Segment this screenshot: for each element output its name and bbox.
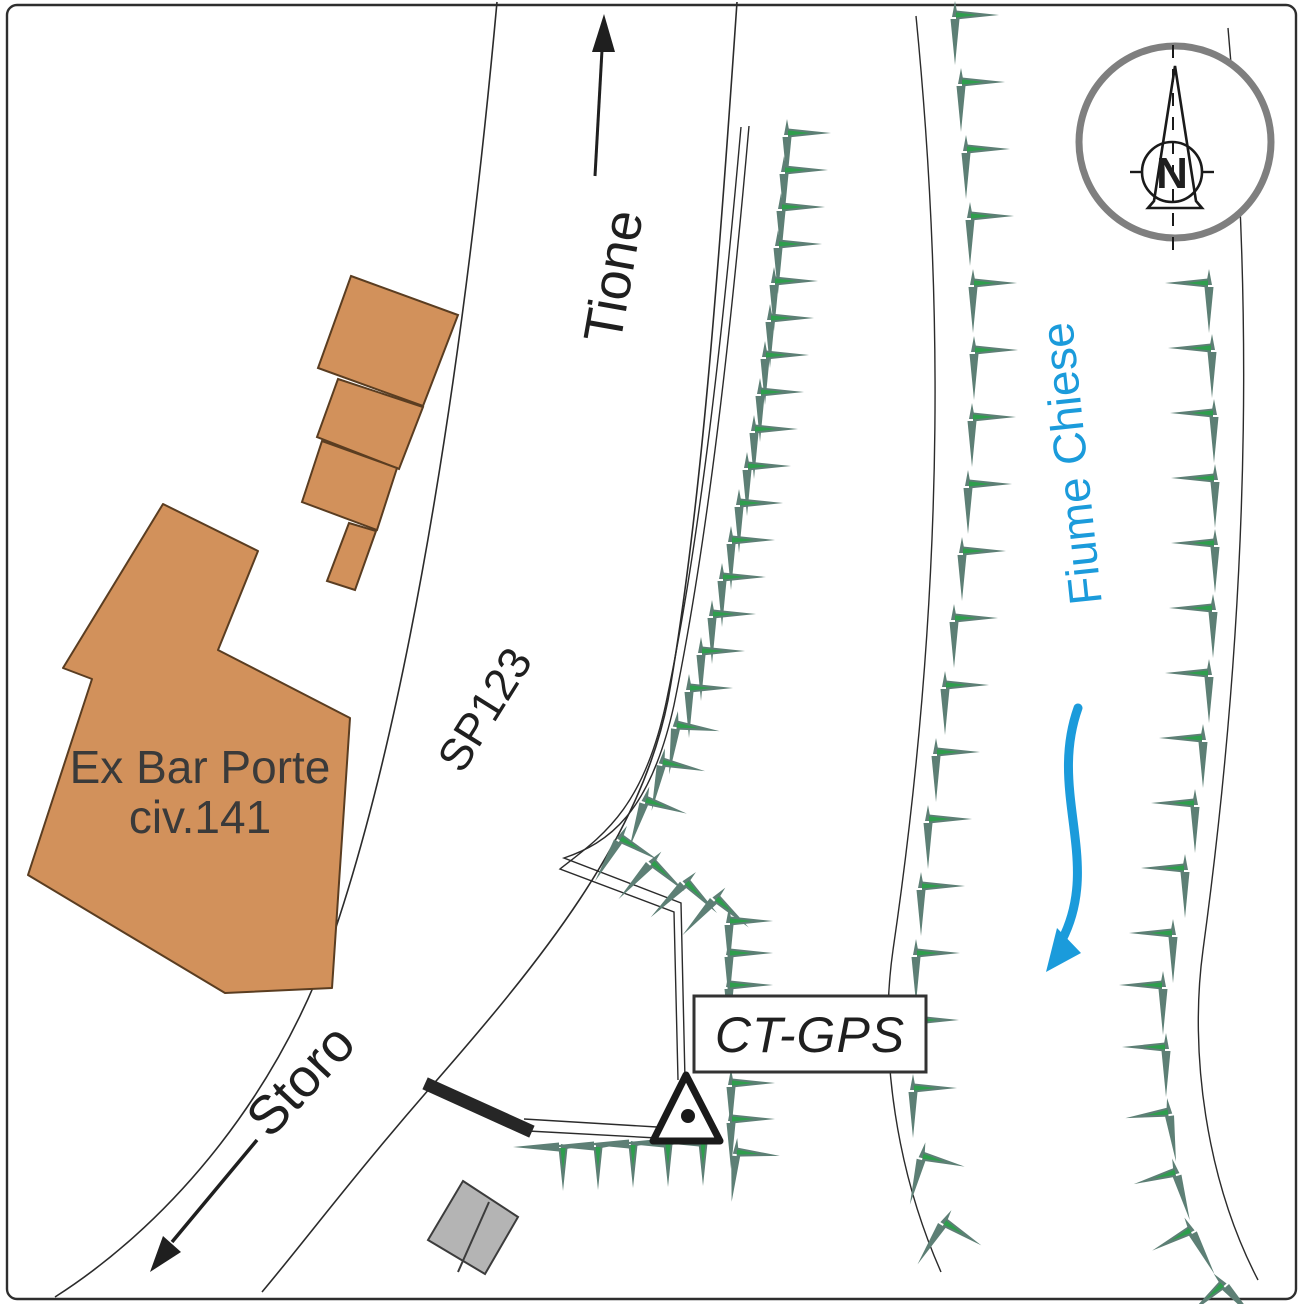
station-center-dot bbox=[681, 1109, 695, 1123]
building-label-line2: civ.141 bbox=[129, 791, 271, 843]
site-sketch-map: Ex Bar Porte civ.141 Tione Storo SP123 F… bbox=[0, 0, 1302, 1304]
station-label: CT-GPS bbox=[715, 1007, 905, 1063]
north-label: N bbox=[1156, 149, 1188, 198]
building-label-line1: Ex Bar Porte bbox=[70, 741, 331, 793]
